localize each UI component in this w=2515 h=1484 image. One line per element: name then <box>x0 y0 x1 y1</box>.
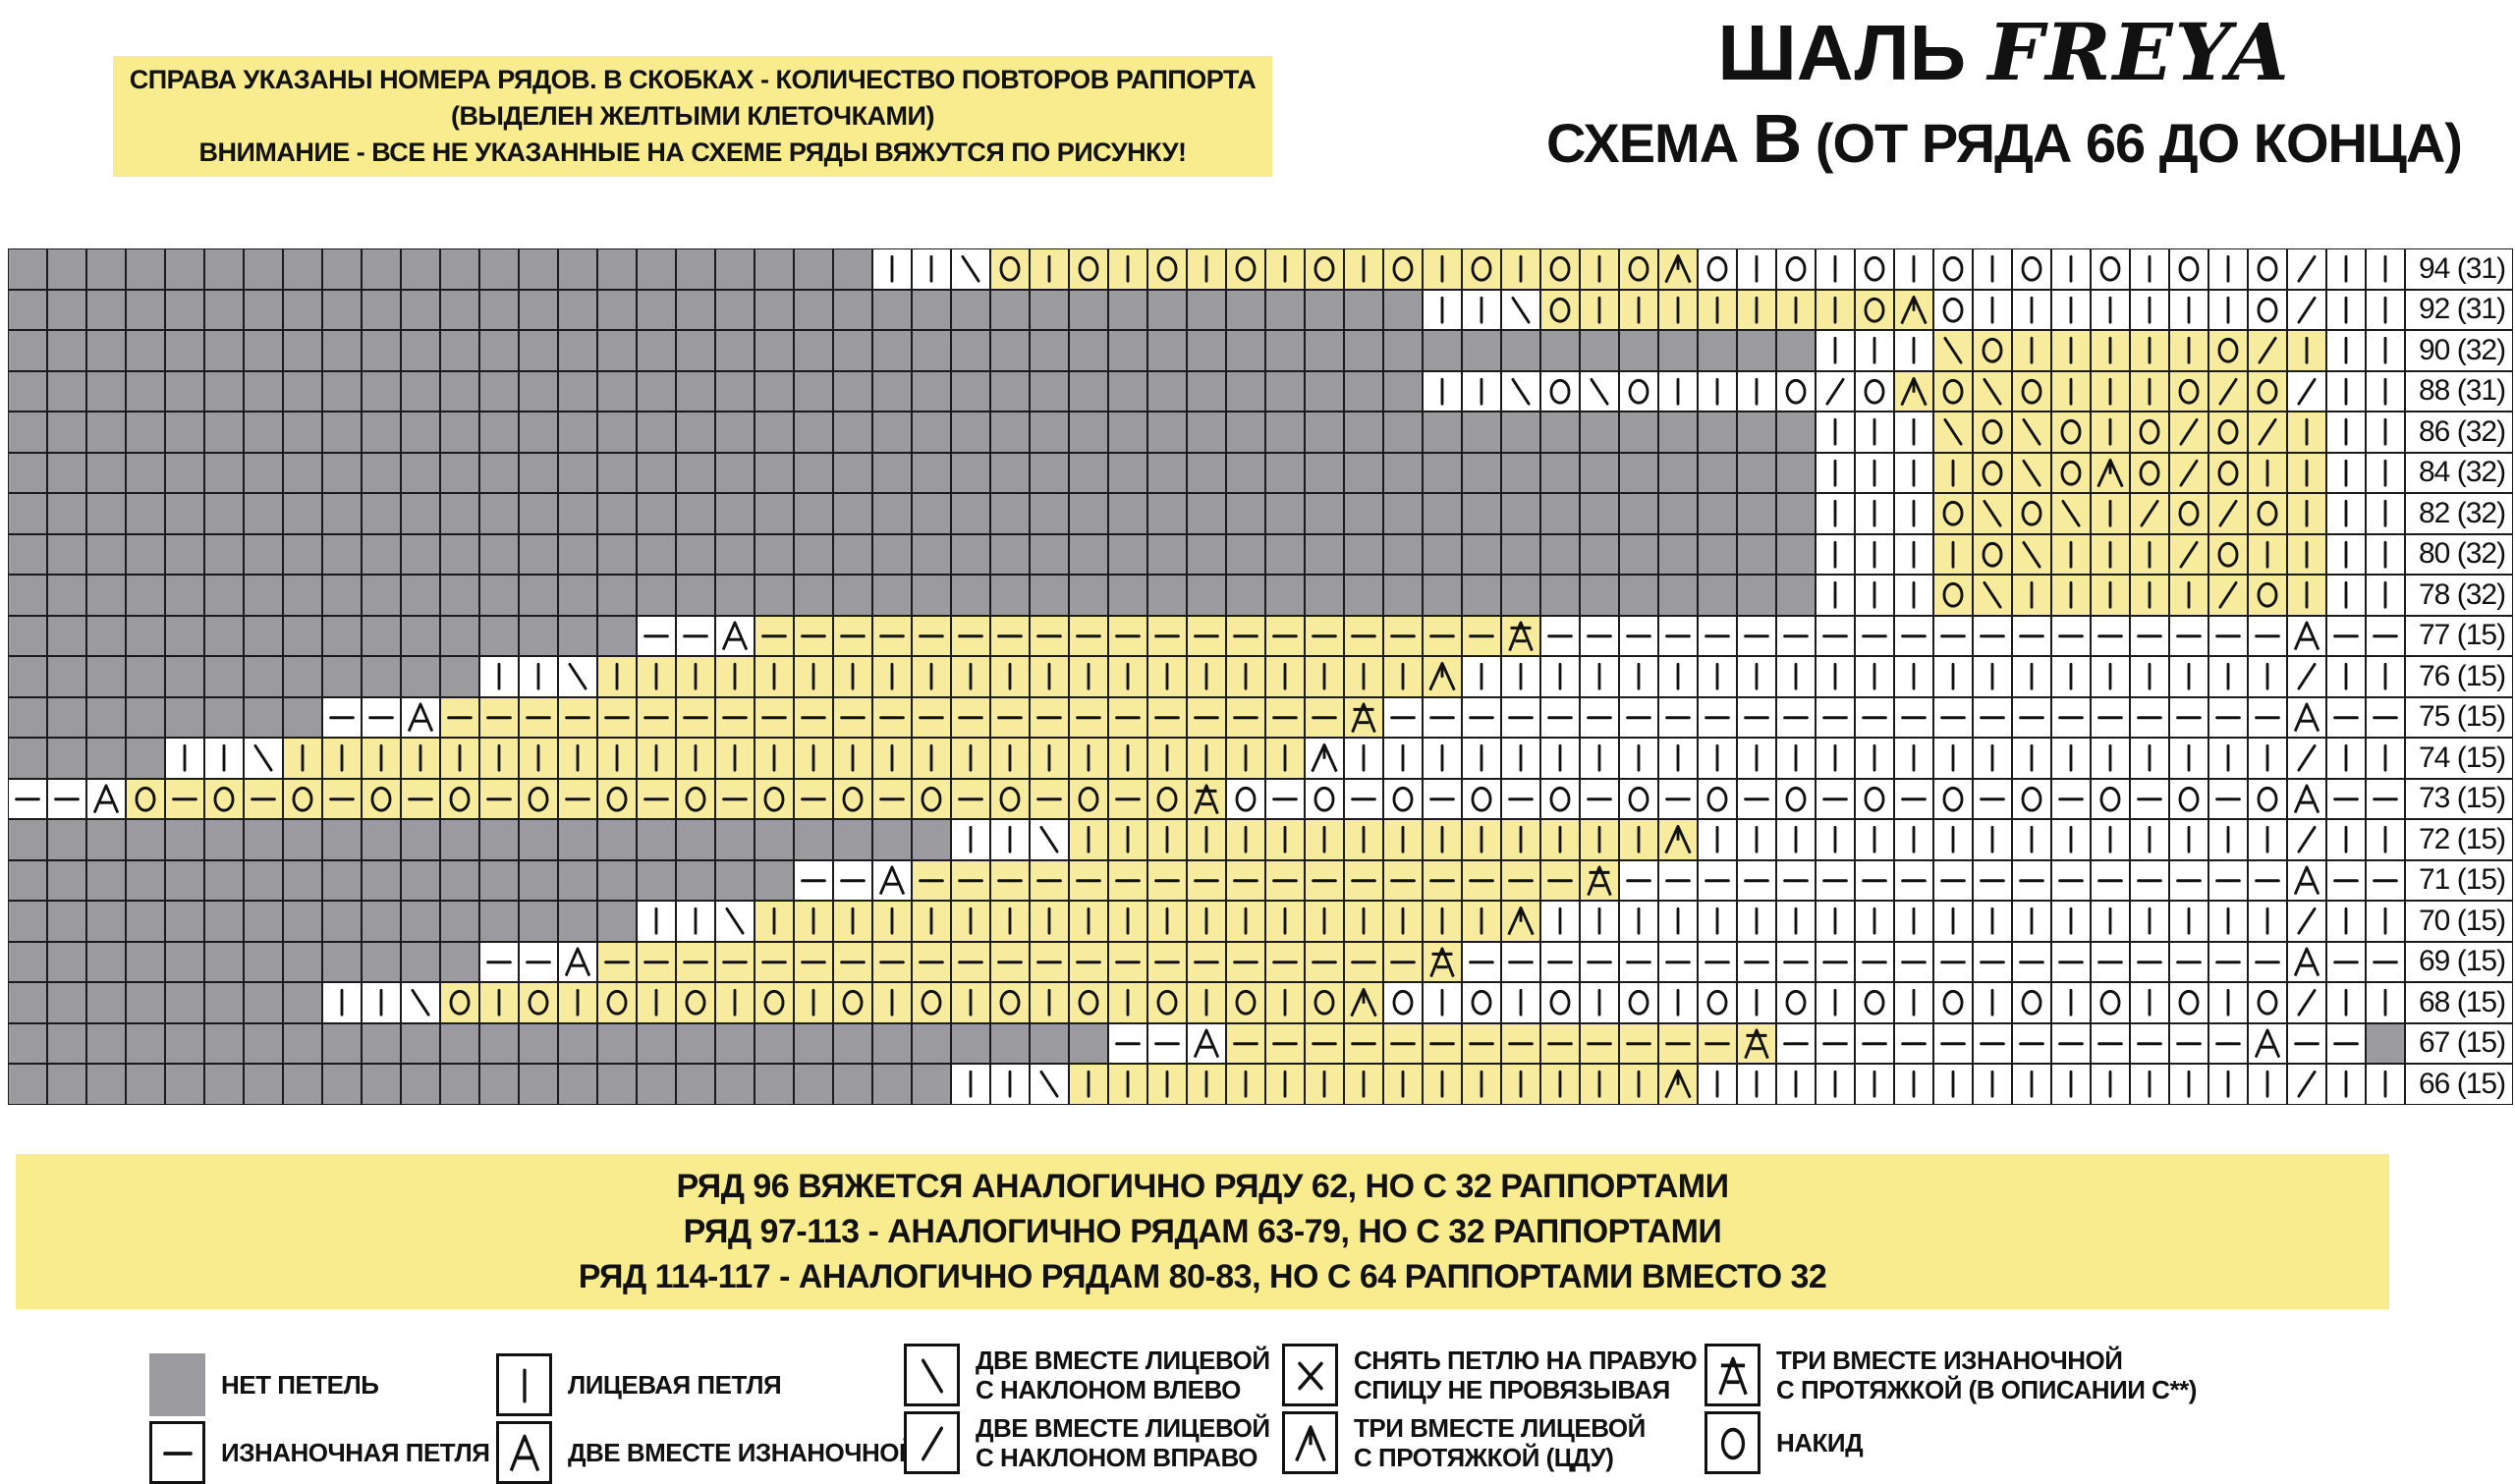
chart-cell-no-stitch <box>1540 534 1580 576</box>
chart-cell-k2tog-left-leaning <box>1973 371 2012 412</box>
chart-cell-k2tog-left-leaning <box>2012 534 2051 576</box>
purl-icon <box>2327 698 2365 738</box>
chart-cell-no-stitch <box>1423 412 1462 453</box>
chart-cell-purl <box>519 697 558 739</box>
chart-cell-knit <box>1737 248 1776 290</box>
chart-cell-purl <box>1344 616 1383 657</box>
yarn-over-icon <box>2209 454 2247 493</box>
yarn-over-icon <box>1934 249 1972 289</box>
chart-cell-no-stitch <box>47 656 86 697</box>
chart-cell-no-stitch <box>1265 330 1305 371</box>
purl-icon <box>2170 1024 2208 1064</box>
chart-cell-knit <box>990 901 1030 942</box>
chart-cell-knit <box>1344 738 1383 779</box>
chart-cell-purl <box>1462 942 1501 983</box>
chart-cell-no-stitch <box>1108 412 1147 453</box>
chart-cell-knit <box>1737 819 1776 860</box>
chart-cell-knit <box>2130 371 2169 412</box>
chart-cell-knit <box>1658 656 1698 697</box>
chart-cell-p3tog-with-slip <box>1580 860 1619 902</box>
chart-cell-knit <box>2287 534 2326 576</box>
chart-cell-no-stitch <box>479 901 519 942</box>
purl-icon <box>2288 1024 2325 1064</box>
purl-icon <box>755 617 793 656</box>
chart-cell-knit <box>1580 248 1619 290</box>
chart-cell-yarn-over <box>440 779 479 820</box>
chart-cell-knit <box>1933 656 1973 697</box>
chart-cell-no-stitch <box>479 575 519 616</box>
chart-cell-knit <box>872 901 912 942</box>
chart-cell-no-stitch <box>165 860 204 902</box>
chart-cell-no-stitch <box>1344 330 1383 371</box>
knit-icon <box>2327 657 2365 696</box>
chart-cell-knit <box>2208 819 2248 860</box>
chart-cell-knit <box>1147 738 1187 779</box>
chart-cell-no-stitch <box>165 697 204 739</box>
purl-icon <box>1816 617 1854 656</box>
chart-cell-no-stitch <box>637 371 676 412</box>
chart-cell-no-stitch <box>1619 412 1658 453</box>
chart-cell-purl <box>1344 1023 1383 1065</box>
chart-cell-knit <box>833 738 872 779</box>
purl-icon <box>1699 943 1736 982</box>
chart-cell-no-stitch <box>1305 330 1344 371</box>
chart-cell-no-stitch <box>401 412 440 453</box>
purl-icon <box>598 943 636 982</box>
chart-cell-knit <box>519 656 558 697</box>
chart-cell-no-stitch <box>637 819 676 860</box>
chart-cell-no-stitch <box>1226 493 1265 534</box>
chart-cell-no-stitch <box>322 290 362 331</box>
knit-icon <box>1816 902 1854 941</box>
k2tog-left-leaning-icon <box>911 1351 954 1401</box>
chart-cell-cdd-3tog-knit <box>2091 453 2130 494</box>
chart-cell-purl <box>2366 860 2405 902</box>
chart-cell-no-stitch <box>676 575 715 616</box>
chart-cell-yarn-over <box>519 779 558 820</box>
purl-icon <box>480 780 518 819</box>
chart-cell-no-stitch <box>951 493 990 534</box>
chart-cell-purl <box>1894 779 1933 820</box>
knit-icon <box>2052 331 2090 370</box>
purl-icon <box>991 861 1029 901</box>
purl-icon <box>2327 617 2365 656</box>
knit-icon <box>2170 820 2208 859</box>
chart-cell-yarn-over <box>754 982 794 1023</box>
chart-cell-knit <box>2091 412 2130 453</box>
chart-cell-no-stitch <box>794 371 833 412</box>
chart-cell-no-stitch <box>676 453 715 494</box>
chart-cell-knit <box>951 656 990 697</box>
chart-cell-no-stitch <box>8 453 47 494</box>
chart-cell-purl <box>1462 697 1501 739</box>
chart-cell-knit <box>1265 819 1305 860</box>
chart-cell-no-stitch <box>754 371 794 412</box>
chart-cell-no-stitch <box>283 819 322 860</box>
chart-cell-no-stitch <box>558 371 597 412</box>
knit-icon <box>952 657 989 696</box>
chart-cell-no-stitch <box>204 371 244 412</box>
chart-cell-no-stitch <box>1423 534 1462 576</box>
chart-cell-no-stitch <box>440 453 479 494</box>
chart-cell-no-stitch <box>1265 575 1305 616</box>
knit-icon <box>1934 739 1972 778</box>
knit-icon <box>991 902 1029 941</box>
chart-cell-yarn-over <box>1776 248 1816 290</box>
chart-cell-k2tog-right-leaning <box>2287 1064 2326 1105</box>
chart-cell-yarn-over <box>2091 779 2130 820</box>
purl-icon <box>795 698 832 738</box>
knit-icon <box>1816 1065 1854 1104</box>
knit-icon <box>1816 739 1854 778</box>
chart-cell-yarn-over <box>597 982 637 1023</box>
yarn-over-icon <box>913 780 950 819</box>
chart-cell-yarn-over <box>1540 290 1580 331</box>
chart-cell-no-stitch <box>479 248 519 290</box>
chart-cell-no-stitch <box>8 982 47 1023</box>
knit-icon <box>2327 576 2365 615</box>
knit-icon <box>2249 454 2286 493</box>
purl-icon <box>1188 861 1225 901</box>
chart-cell-no-stitch <box>676 1023 715 1065</box>
chart-cell-no-stitch <box>244 534 283 576</box>
chart-cell-purl <box>990 942 1030 983</box>
chart-cell-no-stitch <box>833 819 872 860</box>
chart-cell-knit <box>2051 901 2091 942</box>
yarn-over-icon <box>363 780 400 819</box>
chart-cell-no-stitch <box>1619 330 1658 371</box>
chart-cell-yarn-over <box>1698 779 1737 820</box>
legend-item-purl: ИЗНАНОЧНАЯ ПЕТЛЯ <box>149 1421 489 1484</box>
chart-cell-no-stitch <box>519 290 558 331</box>
chart-cell-knit <box>1305 1064 1344 1105</box>
k2tog-left-leaning-icon <box>952 249 989 289</box>
purl-icon <box>1934 617 1972 656</box>
chart-cell-p2tog <box>558 942 597 983</box>
chart-cell-purl <box>1305 616 1344 657</box>
chart-cell-no-stitch <box>440 330 479 371</box>
knit-icon <box>1777 820 1815 859</box>
purl-icon <box>1895 1024 1932 1064</box>
chart-cell-purl <box>951 779 990 820</box>
chart-cell-purl <box>990 616 1030 657</box>
chart-cell-no-stitch <box>1226 371 1265 412</box>
chart-cell-purl <box>1894 1023 1933 1065</box>
legend-item-p2tog: ДВЕ ВМЕСТЕ ИЗНАНОЧНОЙ <box>496 1421 917 1484</box>
chart-cell-purl <box>1973 1023 2012 1065</box>
chart-cell-no-stitch <box>362 575 401 616</box>
chart-cell-knit <box>2091 330 2130 371</box>
chart-cell-purl <box>715 779 754 820</box>
purl-icon <box>2170 617 2208 656</box>
chart-cell-purl <box>794 616 833 657</box>
purl-icon <box>795 861 832 901</box>
purl-icon <box>952 861 989 901</box>
chart-cell-no-stitch <box>8 248 47 290</box>
chart-cell-no-stitch <box>8 1064 47 1105</box>
knit-icon <box>1266 657 1304 696</box>
chart-cell-no-stitch <box>1030 371 1069 412</box>
chart-cell-no-stitch <box>322 656 362 697</box>
p2tog-icon <box>2288 698 2325 738</box>
chart-cell-no-stitch <box>401 656 440 697</box>
yarn-over-icon <box>1856 291 1893 330</box>
knit-icon <box>1699 902 1736 941</box>
chart-cell-no-stitch <box>322 248 362 290</box>
chart-cell-no-stitch <box>1501 453 1540 494</box>
purl-icon <box>1659 780 1697 819</box>
knit-icon <box>1895 1065 1932 1104</box>
purl-icon <box>1699 617 1736 656</box>
cdd-3tog-knit-icon <box>1424 657 1461 696</box>
chart-cell-no-stitch <box>440 290 479 331</box>
purl-icon <box>1816 943 1854 982</box>
purl-icon <box>1581 943 1618 982</box>
legend-group-3: ДВЕ ВМЕСТЕ ЛИЦЕВОЙС НАКЛОНОМ ВЛЕВОДВЕ ВМ… <box>904 1344 1270 1474</box>
knit-icon <box>1424 739 1461 778</box>
chart-cell-cdd-3tog-knit <box>1423 656 1462 697</box>
knit-icon <box>1345 820 1382 859</box>
chart-cell-knit <box>1226 819 1265 860</box>
yarn-over-icon <box>1070 780 1107 819</box>
chart-cell-knit <box>2130 901 2169 942</box>
purl-icon <box>1266 698 1304 738</box>
chart-cell-purl <box>637 942 676 983</box>
chart-cell-purl <box>1933 697 1973 739</box>
chart-cell-purl <box>1619 616 1658 657</box>
purl-icon <box>1345 780 1382 819</box>
chart-cell-purl <box>1108 697 1147 739</box>
chart-cell-purl <box>8 779 47 820</box>
knit-icon <box>2367 535 2404 575</box>
knit-icon <box>323 983 361 1022</box>
chart-cell-knit <box>2326 534 2366 576</box>
chart-cell-no-stitch <box>715 860 754 902</box>
chart-cell-knit <box>2287 575 2326 616</box>
chart-cell-no-stitch <box>362 819 401 860</box>
chart-cell-yarn-over <box>676 779 715 820</box>
chart-cell-no-stitch <box>990 371 1030 412</box>
knit-icon <box>598 657 636 696</box>
chart-cell-no-stitch <box>1658 575 1698 616</box>
chart-cell-no-stitch <box>1147 290 1187 331</box>
chart-cell-no-stitch <box>479 330 519 371</box>
chart-cell-purl <box>2169 860 2208 902</box>
chart-cell-purl <box>1265 616 1305 657</box>
chart-cell-no-stitch <box>1501 575 1540 616</box>
chart-cell-knit <box>1894 738 1933 779</box>
chart-cell-no-stitch <box>165 1023 204 1065</box>
knit-icon <box>1581 291 1618 330</box>
chart-cell-yarn-over <box>2130 412 2169 453</box>
yarn-over-icon <box>2249 576 2286 615</box>
chart-cell-purl <box>1187 942 1226 983</box>
chart-cell-knit <box>1619 290 1658 331</box>
chart-cell-purl <box>1698 1023 1737 1065</box>
chart-cell-knit <box>1344 248 1383 290</box>
chart-cell-no-stitch <box>440 942 479 983</box>
chart-cell-no-stitch <box>597 1023 637 1065</box>
knit-icon <box>952 820 989 859</box>
page-title: ШАЛЬ FREYA <box>1509 6 2499 99</box>
chart-cell-knit <box>1737 1064 1776 1105</box>
chart-cell-knit <box>1501 738 1540 779</box>
chart-cell-yarn-over <box>1855 371 1894 412</box>
chart-cell-no-stitch <box>872 412 912 453</box>
purl-icon <box>1266 780 1304 819</box>
purl-icon <box>559 698 596 738</box>
chart-cell-knit <box>597 656 637 697</box>
purl-icon <box>1424 1024 1461 1064</box>
knit-icon <box>2131 983 2168 1022</box>
chart-cell-knit <box>1619 901 1658 942</box>
chart-cell-knit <box>1776 656 1816 697</box>
chart-cell-no-stitch <box>362 290 401 331</box>
knit-icon <box>1424 902 1461 941</box>
chart-cell-knit <box>2091 819 2130 860</box>
chart-cell-no-stitch <box>1580 493 1619 534</box>
chart-cell-no-stitch <box>244 248 283 290</box>
chart-cell-purl <box>1855 860 1894 902</box>
purl-icon <box>480 698 518 738</box>
chart-cell-no-stitch <box>754 1023 794 1065</box>
chart-cell-no-stitch <box>86 371 126 412</box>
chart-cell-knit <box>1816 248 1855 290</box>
chart-cell-no-stitch <box>1108 371 1147 412</box>
yarn-over-icon <box>2131 454 2168 493</box>
purl-icon <box>323 780 361 819</box>
knit-icon <box>1738 249 1775 289</box>
chart-cell-knit <box>1737 371 1776 412</box>
knit-icon <box>2367 1065 2404 1104</box>
knit-icon <box>2131 1065 2168 1104</box>
knit-icon <box>991 657 1029 696</box>
purl-icon <box>913 617 950 656</box>
yarn-over-icon <box>2249 249 2286 289</box>
chart-cell-no-stitch <box>715 1064 754 1105</box>
chart-cell-no-stitch <box>1619 453 1658 494</box>
chart-cell-knit <box>1344 656 1383 697</box>
chart-cell-no-stitch <box>558 290 597 331</box>
chart-cell-knit <box>2248 656 2287 697</box>
chart-cell-knit <box>2051 656 2091 697</box>
yarn-over-icon <box>1856 372 1893 412</box>
chart-cell-no-stitch <box>86 982 126 1023</box>
chart-cell-purl <box>872 942 912 983</box>
chart-cell-no-stitch <box>1698 330 1737 371</box>
purl-icon <box>1738 617 1775 656</box>
chart-cell-knit <box>2091 738 2130 779</box>
chart-cell-no-stitch <box>558 575 597 616</box>
chart-cell-k2tog-right-leaning <box>2248 412 2287 453</box>
yarn-over-icon <box>1777 780 1815 819</box>
chart-cell-no-stitch <box>440 248 479 290</box>
chart-cell-knit <box>1069 738 1108 779</box>
chart-cell-no-stitch <box>283 942 322 983</box>
chart-cell-yarn-over <box>1933 248 1973 290</box>
chart-cell-purl <box>1147 942 1187 983</box>
purl-icon <box>873 698 911 738</box>
chart-cell-knit <box>1030 901 1069 942</box>
knit-icon <box>1188 983 1225 1022</box>
chart-cell-knit <box>2326 371 2366 412</box>
chart-cell-no-stitch <box>1737 412 1776 453</box>
chart-cell-purl <box>754 697 794 739</box>
chart-cell-no-stitch <box>872 453 912 494</box>
yarn-over-icon <box>1148 983 1186 1022</box>
chart-cell-yarn-over <box>1933 575 1973 616</box>
purl-icon <box>520 698 557 738</box>
p2tog-icon <box>496 1421 552 1484</box>
purl-icon <box>1306 861 1343 901</box>
knit-icon <box>1266 902 1304 941</box>
chart-cell-no-stitch <box>440 616 479 657</box>
knit-icon <box>2013 331 2050 370</box>
chart-cell-no-stitch <box>1462 412 1501 453</box>
chart-cell-knit <box>2051 248 2091 290</box>
chart-cell-purl <box>1226 697 1265 739</box>
knit-icon <box>952 1065 989 1104</box>
chart-cell-no-stitch <box>47 248 86 290</box>
chart-cell-no-stitch <box>401 248 440 290</box>
chart-cell-purl <box>1265 779 1305 820</box>
chart-cell-no-stitch <box>519 1064 558 1105</box>
yarn-over-icon <box>2013 983 2050 1022</box>
chart-cell-knit <box>1187 819 1226 860</box>
chart-cell-k2tog-right-leaning <box>2130 493 2169 534</box>
chart-cell-no-stitch <box>244 575 283 616</box>
knit-icon <box>1895 535 1932 575</box>
chart-cell-no-stitch <box>283 453 322 494</box>
chart-cell-yarn-over <box>2208 534 2248 576</box>
chart-cell-yarn-over <box>1540 982 1580 1023</box>
chart-cell-knit <box>2091 534 2130 576</box>
purl-icon <box>1109 698 1146 738</box>
knit-icon <box>1934 820 1972 859</box>
chart-cell-no-stitch <box>597 493 637 534</box>
knit-icon <box>1738 983 1775 1022</box>
knit-icon <box>2367 412 2404 452</box>
chart-cell-purl <box>1030 860 1069 902</box>
chart-cell-p3tog-with-slip <box>1187 779 1226 820</box>
chart-cell-purl <box>1344 779 1383 820</box>
chart-cell-no-stitch <box>519 534 558 576</box>
chart-cell-cdd-3tog-knit <box>1658 1064 1698 1105</box>
chart-cell-no-stitch <box>86 1023 126 1065</box>
yarn-over-icon <box>1856 983 1893 1022</box>
chart-cell-knit <box>2208 656 2248 697</box>
chart-cell-no-stitch <box>401 860 440 902</box>
chart-cell-no-stitch <box>833 575 872 616</box>
knit-icon <box>1816 535 1854 575</box>
chart-cell-no-stitch <box>283 1064 322 1105</box>
chart-cell-no-stitch <box>362 493 401 534</box>
chart-cell-no-stitch <box>8 330 47 371</box>
chart-cell-purl <box>2091 697 2130 739</box>
yarn-over-icon <box>1934 494 1972 533</box>
purl-icon <box>1541 861 1579 901</box>
chart-cell-knit <box>1816 493 1855 534</box>
yarn-over-icon <box>1705 1411 1760 1474</box>
purl-icon <box>1109 780 1146 819</box>
knit-icon <box>496 1353 552 1416</box>
chart-cell-yarn-over <box>833 779 872 820</box>
chart-cell-no-stitch <box>401 453 440 494</box>
chart-cell-knit <box>2051 819 2091 860</box>
knit-icon <box>2092 412 2129 452</box>
purl-icon <box>402 780 439 819</box>
p2tog-icon <box>2288 943 2325 982</box>
